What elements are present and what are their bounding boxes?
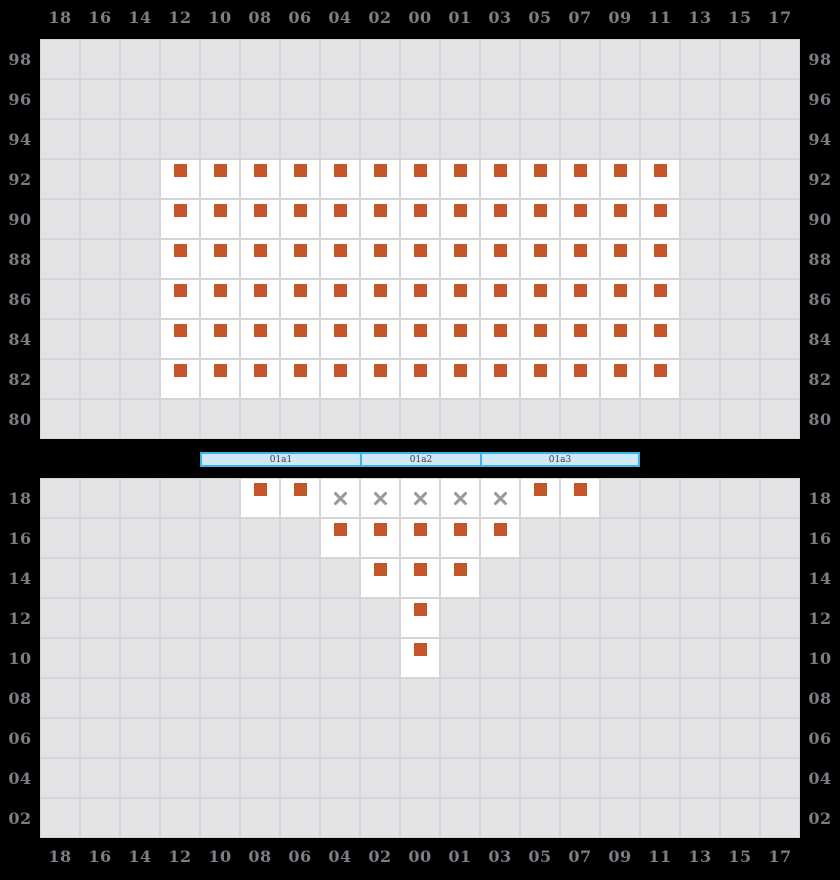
seat-occupied-marker xyxy=(574,284,587,297)
seat-occupied-marker xyxy=(654,284,667,297)
grid-cell-empty xyxy=(760,758,800,798)
grid-cell-empty xyxy=(760,319,800,359)
grid-cell-empty xyxy=(600,678,640,718)
grid-cell-empty xyxy=(400,79,440,119)
seat-cell[interactable] xyxy=(360,518,400,558)
seat-cell[interactable] xyxy=(320,319,360,359)
grid-cell-empty xyxy=(720,279,760,319)
row-label: 02 xyxy=(0,798,40,838)
seat-cell[interactable] xyxy=(560,359,600,399)
row-label: 90 xyxy=(800,199,840,239)
grid-cell-empty xyxy=(80,159,120,199)
column-label: 01 xyxy=(440,838,480,874)
seat-cell[interactable] xyxy=(480,199,520,239)
grid-cell-empty xyxy=(320,558,360,598)
seat-cell[interactable] xyxy=(600,319,640,359)
grid-cell-empty xyxy=(40,678,80,718)
seat-cell[interactable] xyxy=(640,279,680,319)
grid-cell-empty xyxy=(320,798,360,838)
seat-cell[interactable] xyxy=(320,239,360,279)
seat-cell[interactable] xyxy=(360,199,400,239)
seat-cell[interactable] xyxy=(320,518,360,558)
seat-cell[interactable] xyxy=(240,319,280,359)
stage-segment[interactable]: 01a3 xyxy=(482,454,638,465)
grid-cell-empty xyxy=(280,638,320,678)
x-icon xyxy=(452,490,469,507)
x-icon xyxy=(372,490,389,507)
grid-cell-empty xyxy=(760,678,800,718)
grid-cell-empty xyxy=(360,598,400,638)
grid-cell-empty xyxy=(160,558,200,598)
grid-cell-empty xyxy=(160,119,200,159)
seat-cell[interactable] xyxy=(200,279,240,319)
seat-occupied-marker xyxy=(614,164,627,177)
seat-occupied-marker xyxy=(414,603,427,616)
seat-cell[interactable] xyxy=(560,159,600,199)
grid-cell-empty xyxy=(40,199,80,239)
grid-cell-empty xyxy=(520,678,560,718)
grid-cell-empty xyxy=(440,119,480,159)
seat-cell[interactable] xyxy=(600,359,640,399)
grid-cell-empty xyxy=(240,39,280,79)
seat-cell[interactable] xyxy=(440,159,480,199)
grid-cell-empty xyxy=(320,399,360,439)
grid-cell-empty xyxy=(640,718,680,758)
grid-cell-empty xyxy=(720,678,760,718)
seat-cell[interactable] xyxy=(440,319,480,359)
column-label: 07 xyxy=(560,0,600,34)
seat-cell[interactable] xyxy=(480,239,520,279)
grid-cell-empty xyxy=(320,119,360,159)
grid-cell-empty xyxy=(80,239,120,279)
seat-cell[interactable] xyxy=(240,279,280,319)
column-label: 18 xyxy=(40,0,80,34)
seat-occupied-marker xyxy=(454,324,467,337)
column-label: 03 xyxy=(480,0,520,34)
grid-cell-empty xyxy=(40,39,80,79)
seat-cell[interactable] xyxy=(160,159,200,199)
seat-cell[interactable] xyxy=(320,199,360,239)
seat-cell[interactable] xyxy=(280,359,320,399)
grid-cell-empty xyxy=(600,638,640,678)
seat-cell[interactable] xyxy=(320,478,360,518)
seat-cell[interactable] xyxy=(560,478,600,518)
seat-occupied-marker xyxy=(494,204,507,217)
grid-cell-empty xyxy=(720,758,760,798)
grid-cell-empty xyxy=(360,399,400,439)
seat-cell[interactable] xyxy=(360,279,400,319)
seat-cell[interactable] xyxy=(480,319,520,359)
seat-occupied-marker xyxy=(414,324,427,337)
row-label: 84 xyxy=(800,319,840,359)
seat-cell[interactable] xyxy=(440,518,480,558)
seat-cell[interactable] xyxy=(200,159,240,199)
row-label: 08 xyxy=(0,678,40,718)
grid-cell-empty xyxy=(280,758,320,798)
seat-cell[interactable] xyxy=(240,359,280,399)
grid-cell-empty xyxy=(40,119,80,159)
seat-cell[interactable] xyxy=(200,359,240,399)
grid-cell-empty xyxy=(120,798,160,838)
seat-cell[interactable] xyxy=(160,239,200,279)
grid-cell-empty xyxy=(120,159,160,199)
seat-cell[interactable] xyxy=(200,319,240,359)
grid-cell-empty xyxy=(240,638,280,678)
seat-occupied-marker xyxy=(174,284,187,297)
grid-cell-empty xyxy=(560,798,600,838)
grid-cell-empty xyxy=(440,798,480,838)
grid-cell-empty xyxy=(280,678,320,718)
grid-cell-empty xyxy=(560,518,600,558)
grid-cell-empty xyxy=(600,518,640,558)
grid-cell-empty xyxy=(40,478,80,518)
seat-occupied-marker xyxy=(214,364,227,377)
seat-cell[interactable] xyxy=(600,279,640,319)
seat-cell[interactable] xyxy=(480,359,520,399)
grid-cell-empty xyxy=(160,598,200,638)
seat-occupied-marker xyxy=(454,563,467,576)
grid-cell-empty xyxy=(80,319,120,359)
seat-cell[interactable] xyxy=(400,279,440,319)
grid-cell-empty xyxy=(560,399,600,439)
seat-occupied-marker xyxy=(334,204,347,217)
grid-cell-empty xyxy=(200,399,240,439)
seat-cell[interactable] xyxy=(640,199,680,239)
row-labels-top-left: 98969492908886848280 xyxy=(0,39,40,439)
seat-cell[interactable] xyxy=(200,239,240,279)
seat-cell[interactable] xyxy=(520,199,560,239)
grid-cell-empty xyxy=(120,79,160,119)
seat-cell[interactable] xyxy=(520,359,560,399)
grid-cell-empty xyxy=(240,79,280,119)
grid-cell-empty xyxy=(720,518,760,558)
grid-cell-empty xyxy=(80,399,120,439)
seat-occupied-marker xyxy=(214,244,227,257)
row-label: 16 xyxy=(0,518,40,558)
seat-occupied-marker xyxy=(254,483,267,496)
grid-cell-empty xyxy=(200,79,240,119)
grid-cell-empty xyxy=(680,518,720,558)
seat-cell[interactable] xyxy=(240,199,280,239)
grid-cell-empty xyxy=(760,279,800,319)
seat-cell[interactable] xyxy=(400,159,440,199)
row-label: 82 xyxy=(0,359,40,399)
seat-cell[interactable] xyxy=(600,239,640,279)
grid-cell-empty xyxy=(720,39,760,79)
grid-cell-empty xyxy=(480,79,520,119)
seat-cell[interactable] xyxy=(160,199,200,239)
grid-cell-empty xyxy=(560,558,600,598)
grid-cell-empty xyxy=(80,558,120,598)
row-label: 86 xyxy=(800,279,840,319)
seat-cell[interactable] xyxy=(400,319,440,359)
seat-occupied-marker xyxy=(254,324,267,337)
seat-cell[interactable] xyxy=(400,239,440,279)
column-label: 07 xyxy=(560,838,600,874)
seat-occupied-marker xyxy=(174,244,187,257)
column-label: 16 xyxy=(80,0,120,34)
seat-occupied-marker xyxy=(294,204,307,217)
seat-cell[interactable] xyxy=(560,239,600,279)
seat-cell[interactable] xyxy=(440,478,480,518)
grid-cell-empty xyxy=(600,119,640,159)
grid-cell-empty xyxy=(760,199,800,239)
seat-occupied-marker xyxy=(454,284,467,297)
seat-occupied-marker xyxy=(214,204,227,217)
seat-cell[interactable] xyxy=(520,159,560,199)
column-label: 03 xyxy=(480,838,520,874)
seat-cell[interactable] xyxy=(600,199,640,239)
seat-cell[interactable] xyxy=(360,558,400,598)
seat-cell[interactable] xyxy=(400,359,440,399)
seat-occupied-marker xyxy=(414,284,427,297)
grid-cell-empty xyxy=(240,758,280,798)
seat-occupied-marker xyxy=(294,364,307,377)
grid-cell-empty xyxy=(120,119,160,159)
seat-cell[interactable] xyxy=(280,478,320,518)
seat-occupied-marker xyxy=(654,204,667,217)
row-label: 18 xyxy=(800,478,840,518)
seat-cell[interactable] xyxy=(560,319,600,359)
row-label: 16 xyxy=(800,518,840,558)
grid-cell-empty xyxy=(240,798,280,838)
row-label: 80 xyxy=(0,399,40,439)
grid-cell-empty xyxy=(680,678,720,718)
seat-grid-upper xyxy=(40,39,800,439)
grid-cell-empty xyxy=(240,598,280,638)
seat-cell[interactable] xyxy=(640,239,680,279)
grid-cell-empty xyxy=(640,758,680,798)
grid-cell-empty xyxy=(320,638,360,678)
seat-cell[interactable] xyxy=(440,558,480,598)
seat-occupied-marker xyxy=(574,204,587,217)
seat-occupied-marker xyxy=(214,324,227,337)
column-label: 08 xyxy=(240,838,280,874)
row-label: 92 xyxy=(0,159,40,199)
grid-cell-empty xyxy=(360,39,400,79)
seat-cell[interactable] xyxy=(480,279,520,319)
seat-occupied-marker xyxy=(334,324,347,337)
seat-occupied-marker xyxy=(454,204,467,217)
grid-cell-empty xyxy=(720,718,760,758)
row-label: 12 xyxy=(0,598,40,638)
grid-cell-empty xyxy=(760,718,800,758)
seat-occupied-marker xyxy=(374,244,387,257)
seat-cell[interactable] xyxy=(280,159,320,199)
grid-cell-empty xyxy=(600,718,640,758)
seat-cell[interactable] xyxy=(320,359,360,399)
seat-cell[interactable] xyxy=(440,239,480,279)
seat-cell[interactable] xyxy=(360,159,400,199)
grid-cell-empty xyxy=(560,758,600,798)
grid-cell-empty xyxy=(160,39,200,79)
seat-cell[interactable] xyxy=(440,199,480,239)
grid-cell-empty xyxy=(360,798,400,838)
grid-cell-empty xyxy=(680,79,720,119)
grid-cell-empty xyxy=(480,718,520,758)
row-label: 94 xyxy=(800,119,840,159)
seat-cell[interactable] xyxy=(400,638,440,678)
grid-cell-empty xyxy=(520,758,560,798)
seat-cell[interactable] xyxy=(360,239,400,279)
seat-occupied-marker xyxy=(334,164,347,177)
row-label: 98 xyxy=(0,39,40,79)
grid-cell-empty xyxy=(200,638,240,678)
grid-cell-empty xyxy=(760,79,800,119)
seat-occupied-marker xyxy=(494,164,507,177)
grid-cell-empty xyxy=(360,119,400,159)
seat-cell[interactable] xyxy=(320,159,360,199)
grid-cell-empty xyxy=(120,319,160,359)
seat-cell[interactable] xyxy=(400,598,440,638)
seat-occupied-marker xyxy=(374,523,387,536)
seat-cell[interactable] xyxy=(400,199,440,239)
grid-cell-empty xyxy=(160,678,200,718)
grid-cell-empty xyxy=(640,678,680,718)
grid-cell-empty xyxy=(680,159,720,199)
seat-occupied-marker xyxy=(614,324,627,337)
seat-occupied-marker xyxy=(294,284,307,297)
grid-cell-empty xyxy=(520,598,560,638)
column-label: 01 xyxy=(440,0,480,34)
grid-cell-empty xyxy=(400,678,440,718)
stage-segment[interactable]: 01a1 xyxy=(202,454,360,465)
seat-cell[interactable] xyxy=(640,319,680,359)
seat-occupied-marker xyxy=(494,523,507,536)
seat-cell[interactable] xyxy=(400,518,440,558)
seat-cell[interactable] xyxy=(360,319,400,359)
seat-cell[interactable] xyxy=(480,518,520,558)
grid-cell-empty xyxy=(80,518,120,558)
grid-cell-empty xyxy=(200,518,240,558)
grid-cell-empty xyxy=(80,79,120,119)
grid-cell-empty xyxy=(600,79,640,119)
grid-cell-empty xyxy=(40,718,80,758)
seat-cell[interactable] xyxy=(160,319,200,359)
grid-cell-empty xyxy=(760,478,800,518)
grid-cell-empty xyxy=(40,239,80,279)
seat-cell[interactable] xyxy=(520,279,560,319)
row-label: 96 xyxy=(0,79,40,119)
seat-cell[interactable] xyxy=(200,199,240,239)
grid-cell-empty xyxy=(320,598,360,638)
grid-cell-empty xyxy=(760,518,800,558)
seat-cell[interactable] xyxy=(240,478,280,518)
grid-cell-empty xyxy=(440,399,480,439)
grid-cell-empty xyxy=(560,79,600,119)
row-label: 98 xyxy=(800,39,840,79)
seat-cell[interactable] xyxy=(600,159,640,199)
row-label: 86 xyxy=(0,279,40,319)
seat-cell[interactable] xyxy=(360,478,400,518)
grid-cell-empty xyxy=(760,119,800,159)
column-label: 11 xyxy=(640,838,680,874)
grid-cell-empty xyxy=(720,239,760,279)
seat-cell[interactable] xyxy=(560,279,600,319)
column-label: 09 xyxy=(600,838,640,874)
row-label: 90 xyxy=(0,199,40,239)
grid-cell-empty xyxy=(600,798,640,838)
grid-cell-empty xyxy=(640,399,680,439)
row-label: 84 xyxy=(0,319,40,359)
grid-cell-empty xyxy=(40,399,80,439)
seat-occupied-marker xyxy=(614,284,627,297)
grid-cell-empty xyxy=(760,558,800,598)
grid-cell-empty xyxy=(280,39,320,79)
row-label: 92 xyxy=(800,159,840,199)
seat-cell[interactable] xyxy=(440,359,480,399)
column-label: 15 xyxy=(720,838,760,874)
seat-occupied-marker xyxy=(454,244,467,257)
grid-cell-empty xyxy=(560,638,600,678)
seat-cell[interactable] xyxy=(640,359,680,399)
seat-occupied-marker xyxy=(534,244,547,257)
grid-cell-empty xyxy=(80,119,120,159)
grid-cell-empty xyxy=(200,478,240,518)
grid-cell-empty xyxy=(80,478,120,518)
seat-cell[interactable] xyxy=(320,279,360,319)
seat-cell[interactable] xyxy=(440,279,480,319)
seat-cell[interactable] xyxy=(280,279,320,319)
grid-cell-empty xyxy=(80,678,120,718)
grid-cell-empty xyxy=(520,638,560,678)
grid-cell-empty xyxy=(160,638,200,678)
seat-cell[interactable] xyxy=(360,359,400,399)
seat-occupied-marker xyxy=(294,483,307,496)
seat-occupied-marker xyxy=(334,364,347,377)
grid-cell-empty xyxy=(320,758,360,798)
seat-cell[interactable] xyxy=(280,199,320,239)
grid-cell-empty xyxy=(560,598,600,638)
grid-cell-empty xyxy=(200,558,240,598)
grid-cell-empty xyxy=(280,399,320,439)
grid-cell-empty xyxy=(760,598,800,638)
seat-cell[interactable] xyxy=(560,199,600,239)
seat-cell[interactable] xyxy=(400,478,440,518)
grid-cell-empty xyxy=(640,39,680,79)
stage-segment[interactable]: 01a2 xyxy=(360,454,482,465)
seat-cell[interactable] xyxy=(240,239,280,279)
grid-cell-empty xyxy=(480,399,520,439)
row-labels-bottom-right: 181614121008060402 xyxy=(800,478,840,838)
seat-cell[interactable] xyxy=(400,558,440,598)
seat-cell[interactable] xyxy=(160,359,200,399)
seat-cell[interactable] xyxy=(520,478,560,518)
seat-cell[interactable] xyxy=(520,319,560,359)
row-label: 94 xyxy=(0,119,40,159)
grid-cell-empty xyxy=(640,478,680,518)
seat-cell[interactable] xyxy=(280,319,320,359)
grid-cell-empty xyxy=(200,758,240,798)
grid-cell-empty xyxy=(720,798,760,838)
grid-cell-empty xyxy=(400,758,440,798)
seat-occupied-marker xyxy=(174,164,187,177)
grid-cell-empty xyxy=(680,478,720,518)
seat-cell[interactable] xyxy=(280,239,320,279)
seat-cell[interactable] xyxy=(520,239,560,279)
seat-cell[interactable] xyxy=(160,279,200,319)
grid-cell-empty xyxy=(240,678,280,718)
seat-cell[interactable] xyxy=(640,159,680,199)
seat-cell[interactable] xyxy=(240,159,280,199)
seat-cell[interactable] xyxy=(480,159,520,199)
column-label: 10 xyxy=(200,838,240,874)
grid-cell-empty xyxy=(120,478,160,518)
grid-cell-empty xyxy=(520,39,560,79)
seat-cell[interactable] xyxy=(480,478,520,518)
grid-cell-empty xyxy=(720,319,760,359)
grid-cell-empty xyxy=(40,598,80,638)
